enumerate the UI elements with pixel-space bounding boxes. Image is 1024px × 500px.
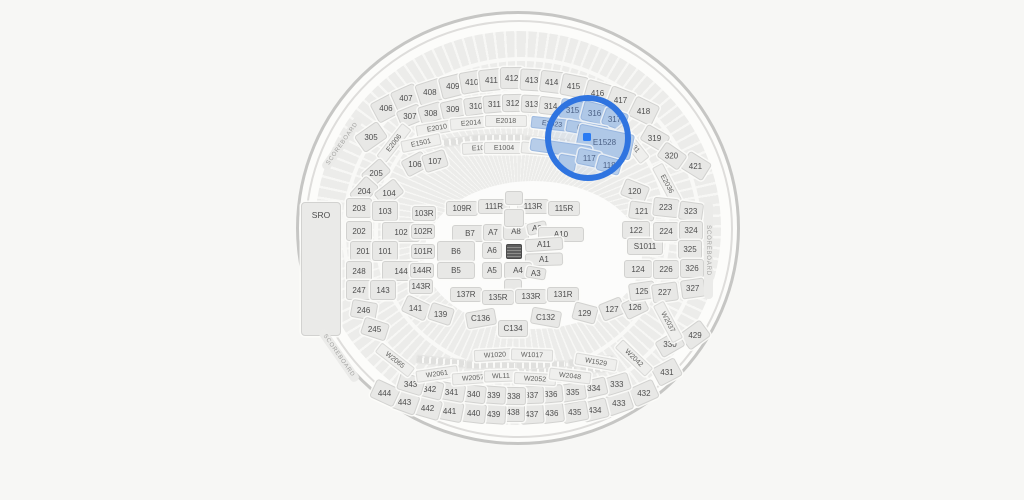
section-label: 435 — [568, 408, 581, 417]
section-label: 414 — [545, 77, 558, 86]
section-247[interactable]: 247 — [346, 280, 372, 300]
section-325[interactable]: 325 — [678, 240, 702, 259]
seat-location-marker[interactable] — [583, 133, 591, 141]
section-label: 327 — [686, 284, 699, 293]
section-label: 224 — [659, 227, 672, 236]
section-202[interactable]: 202 — [346, 221, 372, 241]
section-label: W1017 — [521, 351, 543, 359]
section-label: W2061 — [426, 369, 449, 379]
section-label: 312 — [506, 99, 519, 108]
section-label: 311 — [488, 100, 501, 109]
section-101R[interactable]: 101R — [411, 244, 435, 259]
section-109R[interactable]: 109R — [446, 201, 478, 216]
section-label: 437 — [525, 410, 538, 419]
section-103R[interactable]: 103R — [412, 206, 436, 221]
section-label: A11 — [537, 240, 551, 249]
section-label: 102 — [394, 228, 407, 237]
section-115R[interactable]: 115R — [548, 201, 580, 216]
section-label: A8 — [511, 227, 521, 236]
section-label: 431 — [660, 368, 673, 377]
section-label: 223 — [659, 202, 672, 211]
section-label: 126 — [628, 303, 641, 312]
section-label: E2010 — [426, 123, 447, 133]
section-223[interactable]: 223 — [652, 196, 680, 218]
scoreboard-label: SCOREBOARD — [704, 202, 713, 299]
section-143R[interactable]: 143R — [409, 279, 433, 294]
section-label: 336 — [544, 390, 557, 399]
section-label: WL11 — [492, 372, 510, 380]
section-label: 307 — [403, 112, 416, 121]
section-label: W2052 — [524, 375, 547, 383]
section-A7[interactable]: A7 — [483, 224, 503, 241]
section-label: 101 — [378, 247, 391, 256]
section-label: 125 — [635, 287, 648, 296]
section-A5[interactable]: A5 — [482, 262, 502, 279]
section-label: 129 — [578, 308, 591, 317]
section-label: 413 — [525, 75, 538, 84]
section-label: 113R — [524, 202, 543, 211]
section-label: C134 — [503, 324, 522, 333]
section-label: 103 — [378, 207, 391, 216]
section-label: 412 — [505, 74, 518, 83]
section-label: 326 — [685, 264, 698, 273]
section-label: 325 — [683, 245, 696, 254]
section-label: 309 — [446, 105, 459, 114]
section-B6[interactable]: B6 — [437, 241, 475, 262]
section-label: SRO — [312, 210, 330, 220]
section-label: B6 — [451, 247, 461, 256]
section-label: 313 — [525, 99, 538, 108]
section-label: 418 — [637, 106, 650, 115]
section-label: 324 — [684, 226, 697, 235]
section-label: W1020 — [484, 351, 507, 359]
section-label: 115R — [555, 204, 574, 213]
section-label: 102R — [413, 227, 432, 236]
section-label: 107 — [428, 157, 441, 166]
section-label: 137R — [456, 290, 475, 299]
section-label: 245 — [368, 324, 381, 333]
section-label: 436 — [545, 409, 558, 418]
section-label: A4 — [513, 266, 523, 275]
section-W1017[interactable]: W1017 — [511, 348, 553, 361]
section-label: 339 — [487, 390, 500, 399]
section-label: E2014 — [461, 119, 482, 128]
section-133R[interactable]: 133R — [515, 289, 547, 304]
stage — [506, 244, 522, 259]
section-label: 144R — [412, 266, 431, 275]
section-label: 226 — [659, 265, 672, 274]
section-label: 409 — [446, 82, 459, 91]
section-E2018[interactable]: E2018 — [485, 115, 527, 127]
section-label: 319 — [648, 133, 661, 142]
section-135R[interactable]: 135R — [482, 290, 514, 305]
sro-area[interactable]: SRO — [301, 202, 341, 336]
section-label: E1501 — [410, 137, 431, 148]
section-label: 124 — [631, 265, 644, 274]
section-W1020[interactable]: W1020 — [474, 348, 517, 362]
section-label: 323 — [684, 206, 697, 215]
section-label: 320 — [665, 151, 678, 160]
section-102R[interactable]: 102R — [411, 224, 435, 239]
section-label: 121 — [635, 206, 648, 215]
section-label: 440 — [467, 408, 480, 417]
section-326[interactable]: 326 — [680, 259, 704, 278]
section-327[interactable]: 327 — [680, 277, 706, 299]
section-label: B5 — [451, 266, 461, 275]
section-label: 432 — [637, 389, 650, 398]
section-label: 101R — [413, 247, 432, 256]
section-label: 337 — [525, 391, 538, 400]
section-label: 141 — [409, 303, 422, 312]
section-label: 133R — [521, 292, 540, 301]
section-label: 308 — [424, 109, 437, 118]
section-label: 439 — [487, 409, 500, 418]
section-label: 411 — [485, 76, 498, 85]
section-label: E2018 — [496, 118, 516, 125]
section-label: 106 — [408, 160, 421, 169]
section-label: A6 — [487, 246, 497, 255]
section-label: W2057 — [462, 374, 485, 383]
section-label: 247 — [352, 286, 365, 295]
section-label: 407 — [399, 94, 412, 103]
section-226[interactable]: 226 — [653, 260, 679, 279]
section-label: 421 — [689, 161, 702, 170]
section-label: 104 — [382, 189, 395, 198]
section-label: 335 — [566, 388, 579, 397]
section-label: 408 — [423, 88, 436, 97]
section-122[interactable]: 122 — [622, 221, 650, 239]
section-label: 340 — [467, 389, 480, 398]
section-label: 333 — [610, 380, 623, 389]
section-label: 144 — [394, 267, 407, 276]
section-324[interactable]: 324 — [679, 221, 703, 240]
section-103[interactable]: 103 — [372, 201, 398, 221]
section-label: W2048 — [559, 371, 582, 381]
section-144R[interactable]: 144R — [410, 263, 434, 278]
section-label: 227 — [658, 288, 671, 297]
section-label: 406 — [379, 104, 392, 113]
section-143[interactable]: 143 — [370, 280, 396, 300]
section-label: 131R — [553, 290, 572, 299]
section-227[interactable]: 227 — [651, 281, 679, 303]
section-323[interactable]: 323 — [678, 200, 704, 222]
section-label: 442 — [421, 403, 434, 412]
section-label: 417 — [614, 95, 627, 104]
section-label: 203 — [352, 204, 365, 213]
section-C134[interactable]: C134 — [498, 320, 528, 337]
section-shape — [505, 191, 523, 205]
section-label: 433 — [612, 399, 625, 408]
section-label: 135R — [488, 293, 507, 302]
section-label: A7 — [488, 228, 498, 237]
section-shape — [504, 209, 524, 227]
section-label: 246 — [357, 305, 370, 314]
section-248[interactable]: 248 — [346, 261, 372, 281]
section-label: 415 — [567, 81, 580, 90]
section-label: 441 — [443, 406, 456, 415]
section-label: 201 — [356, 247, 369, 256]
section-label: 438 — [506, 408, 519, 417]
section-label: 127 — [605, 305, 618, 314]
section-label: 143R — [411, 282, 430, 291]
section-label: 305 — [364, 133, 377, 142]
section-203[interactable]: 203 — [346, 198, 372, 218]
section-label: 204 — [357, 187, 370, 196]
section-label: 143 — [376, 286, 389, 295]
section-label: 434 — [588, 406, 601, 415]
section-label: 120 — [628, 186, 641, 195]
section-label: 334 — [587, 384, 600, 393]
section-label: 343 — [404, 379, 417, 388]
section-label: 122 — [629, 226, 642, 235]
section-131R[interactable]: 131R — [547, 287, 579, 302]
section-label: 248 — [352, 267, 365, 276]
section-label: 338 — [507, 391, 520, 400]
section-E1004[interactable]: E1004 — [484, 142, 524, 154]
venue-seat-map: 4064074084094104114124134144154164174184… — [0, 0, 1024, 500]
section-label: C136 — [471, 314, 490, 323]
section-label: C132 — [536, 313, 555, 322]
section-label: 443 — [398, 397, 411, 406]
section-label: 341 — [445, 387, 458, 396]
section-label: A5 — [487, 266, 497, 275]
section-label: W1529 — [584, 357, 607, 368]
section-label: 109R — [452, 204, 471, 213]
section-label: A1 — [539, 255, 549, 264]
section-label: A3 — [531, 268, 541, 277]
section-A6[interactable]: A6 — [482, 242, 502, 259]
section-B5[interactable]: B5 — [437, 262, 475, 279]
section-label: 139 — [434, 309, 447, 318]
section-440[interactable]: 440 — [461, 402, 487, 425]
section-label: E1004 — [494, 145, 514, 152]
section-label: 429 — [688, 331, 701, 340]
section-label: 205 — [369, 169, 382, 178]
section-label: 111R — [485, 202, 503, 211]
section-137R[interactable]: 137R — [450, 287, 482, 302]
section-224[interactable]: 224 — [653, 222, 679, 241]
section-label: S1011 — [634, 242, 657, 251]
section-label: B7 — [465, 229, 475, 238]
section-label: 410 — [465, 78, 478, 87]
section-label: 202 — [352, 227, 365, 236]
section-label: 310 — [469, 102, 482, 111]
section-label: 444 — [378, 388, 391, 397]
section-label: 103R — [414, 209, 433, 218]
section-124[interactable]: 124 — [624, 260, 652, 278]
section-label: 342 — [423, 384, 436, 393]
section-101[interactable]: 101 — [372, 241, 398, 261]
section-A11[interactable]: A11 — [525, 236, 564, 252]
